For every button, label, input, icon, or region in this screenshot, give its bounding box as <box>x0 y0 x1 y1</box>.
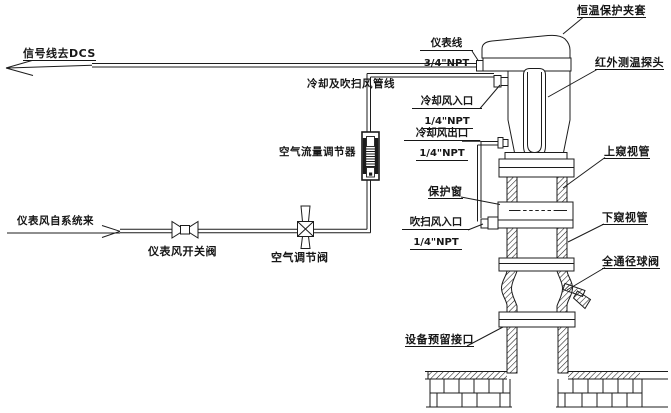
label-thermostatic-jacket: 恒温保护夹套 <box>577 4 646 18</box>
brick-course-right <box>556 379 668 407</box>
callout-cooling-in: 冷却风入口 1/4"NPT <box>412 95 482 129</box>
mid-flange <box>499 258 574 271</box>
callout-cooling-in-text: 冷却风入口 <box>412 95 482 109</box>
lower-sight-tube-wall <box>557 228 567 258</box>
callout-purge-in-size: 1/4"NPT <box>410 237 461 250</box>
mounting-stack <box>498 159 574 271</box>
instrument-line-nub <box>477 61 484 72</box>
callout-purge-in: 吹扫风入口 1/4"NPT <box>402 216 470 250</box>
callout-cooling-out: 冷却风出口 1/4"NPT <box>404 127 480 161</box>
brick-course-left <box>426 379 512 407</box>
flow-arrow-icon <box>102 226 120 232</box>
callout-instrument-line-text: 仪表线 <box>420 37 473 51</box>
upper-sight-tube-wall <box>507 177 517 202</box>
furnace-wall <box>425 372 668 408</box>
full-bore-ball-valve <box>499 271 591 373</box>
leader-thermostatic-jacket <box>563 18 583 35</box>
callout-instrument-line: 仪表线 3/4"NPT <box>420 37 473 70</box>
label-lower-sight-tube: 下窥视管 <box>602 211 648 225</box>
air-regulating-valve <box>298 206 314 249</box>
label-instrument-air-from: 仪表风自系统来 <box>17 215 94 228</box>
probe-base-plate <box>505 153 567 160</box>
protection-window-block <box>498 202 573 228</box>
label-instrument-air-valve: 仪表风开关阀 <box>148 245 217 258</box>
label-air-flow-regulator: 空气流量调节器 <box>279 146 356 159</box>
upper-sight-tube-wall <box>557 177 567 202</box>
label-full-bore-ball-valve: 全通径球阀 <box>602 255 660 269</box>
label-signal-to-dcs: 信号线去DCS <box>23 47 96 61</box>
label-ir-probe: 红外测温探头 <box>595 56 664 70</box>
nozzle-tube-wall <box>507 327 517 373</box>
probe-lens-tube <box>524 69 546 158</box>
valve-handle-end <box>574 291 591 309</box>
instrument-air-onoff-valve <box>172 222 198 239</box>
ir-probe-assembly <box>477 35 572 159</box>
diagram-canvas <box>0 0 671 413</box>
label-protection-window: 保护窗 <box>428 185 463 199</box>
thermostatic-jacket-cap <box>482 35 570 58</box>
air-flow-regulator <box>362 132 379 180</box>
callout-cooling-out-size: 1/4"NPT <box>416 148 467 161</box>
label-air-regulating-valve: 空气调节阀 <box>271 251 329 264</box>
label-upper-sight-tube: 上窥视管 <box>604 145 650 159</box>
leader-cooling-in <box>480 85 500 109</box>
callout-instrument-line-size: 3/4"NPT <box>421 58 472 70</box>
callout-cooling-out-text: 冷却风出口 <box>404 127 480 141</box>
lower-sight-tube-wall <box>507 228 517 258</box>
diagram-page: 信号线去DCS 仪表线 3/4"NPT 冷却及吹扫风管线 冷却风入口 1/4"N… <box>0 0 671 413</box>
label-cooling-purge-pipe: 冷却及吹扫风管线 <box>307 78 395 91</box>
callout-purge-in-text: 吹扫风入口 <box>402 216 470 230</box>
nozzle-tube-wall <box>558 327 568 373</box>
label-reserved-interface: 设备预留接口 <box>405 333 474 347</box>
